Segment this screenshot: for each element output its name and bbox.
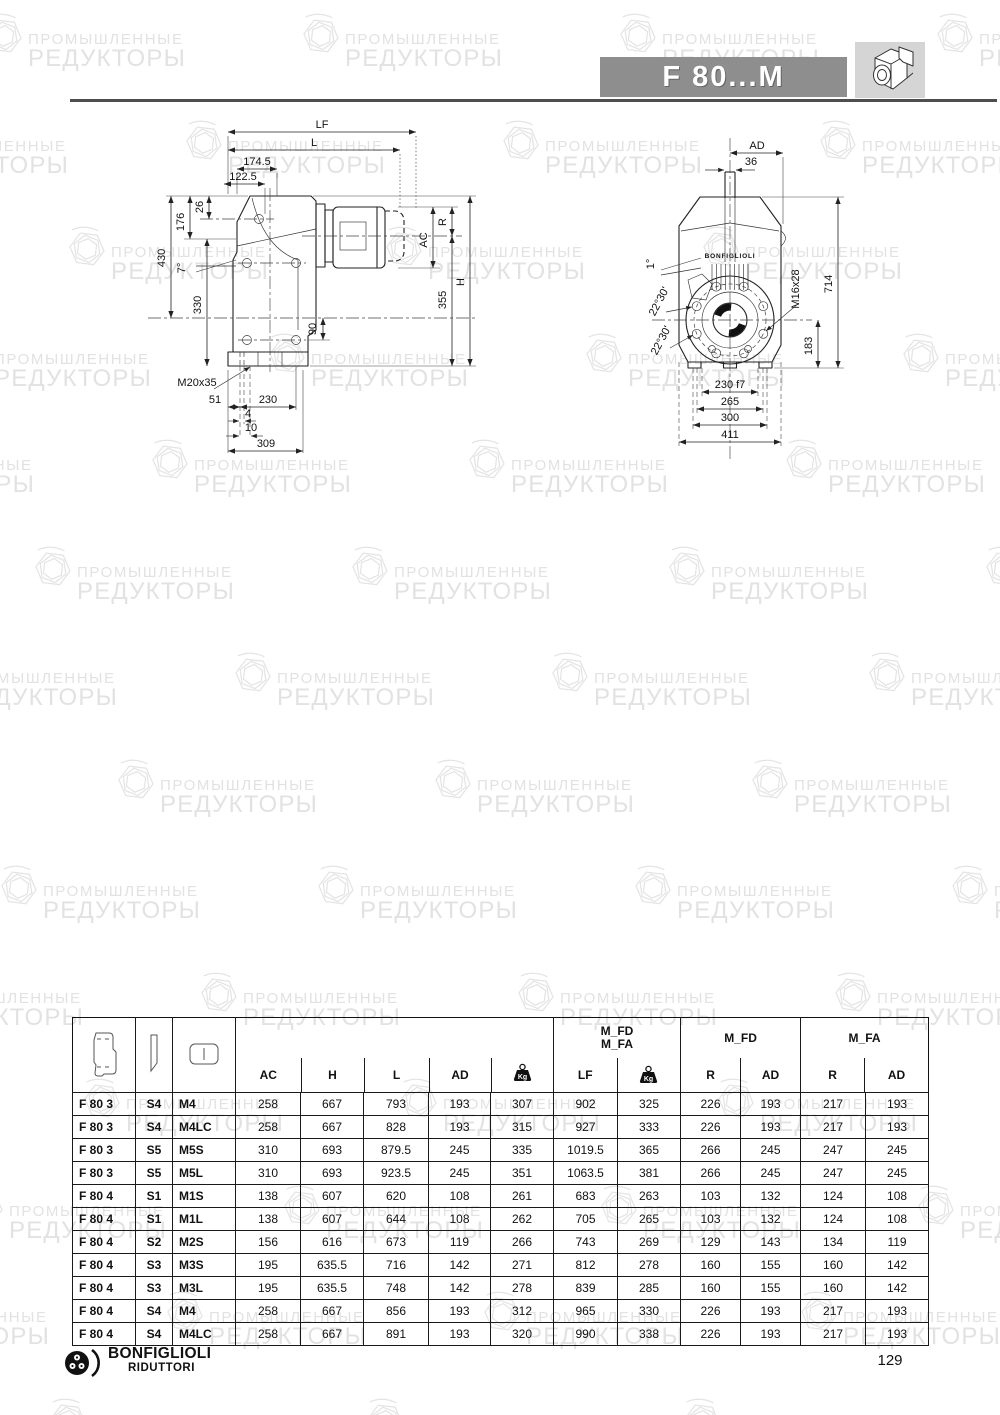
cell-value: S3 [136, 1277, 173, 1300]
watermark: ПРОМЫШЛЕННЫЕРЕДУКТОРЫ [351, 543, 552, 603]
watermark-line1: ПРОМЫШЛЕННЫЕ [994, 884, 1000, 899]
header-divider [70, 99, 997, 102]
cell-value: 124 [801, 1185, 866, 1208]
cell-value: 607 [301, 1185, 364, 1208]
watermark-line2: РЕДУКТОРЫ [160, 793, 318, 816]
cell-value: S5 [136, 1162, 173, 1185]
weight-icon: Kg [618, 1065, 681, 1086]
cell-model: F 80 4 [73, 1231, 136, 1254]
cell-model: F 80 3 [73, 1139, 136, 1162]
cell-value: 129 [681, 1231, 741, 1254]
cell-value: 635.5 [301, 1277, 364, 1300]
watermark-hex-logo [351, 543, 389, 591]
dim-230f7: 230 f7 [715, 379, 746, 391]
watermark-hex-logo [317, 862, 355, 910]
cell-value: 132 [741, 1185, 801, 1208]
dim-714: 714 [823, 275, 835, 293]
cell-value: 247 [801, 1162, 866, 1185]
watermark-line1: ПРОМЫШЛЕННЫЕ [560, 991, 718, 1006]
dim-90: 90 [307, 323, 319, 335]
cell-value: 693 [301, 1162, 364, 1185]
watermark-line2: РЕДУКТОРЫ [794, 793, 952, 816]
cell-value: 879.5 [364, 1139, 429, 1162]
cell-value: 193 [866, 1300, 929, 1323]
cell-value: 635.5 [301, 1254, 364, 1277]
watermark-line2: РЕДУКТОРЫ [0, 686, 118, 709]
watermark-hex-logo [434, 756, 472, 804]
cell-value: 108 [866, 1185, 929, 1208]
cell-value: 193 [741, 1323, 801, 1346]
cell-value: 923.5 [364, 1162, 429, 1185]
watermark-line1: ПРОМЫШЛЕННЫЕ [360, 884, 518, 899]
page-title: F 80...M [600, 57, 847, 97]
cell-value: 160 [681, 1277, 741, 1300]
dim-r: R [437, 218, 449, 226]
bonfiglioli-logo: BONFIGLIOLI RIDUTTORI [62, 1347, 211, 1381]
cell-value: 217 [801, 1093, 866, 1116]
cell-value: 108 [866, 1208, 929, 1231]
cell-value: 828 [364, 1116, 429, 1139]
watermark-line1: ПРОМЫШЛЕННЫЕ [877, 991, 1000, 1006]
cell-value: 143 [741, 1231, 801, 1254]
output-shaft-icon [136, 1018, 173, 1093]
watermark-line1: ПРОМЫШЛЕННЫЕ [77, 565, 235, 580]
watermark-hex-logo [200, 969, 238, 1017]
watermark-line2: РЕДУКТОРЫ [960, 1219, 1000, 1242]
dim-1deg: 1° [645, 259, 657, 270]
watermark-hex-logo [49, 1395, 87, 1415]
watermark-line1: ПРОМЫШЛЕННЫЕ [677, 884, 835, 899]
watermark-line1: ПРОМЫШЛЕННЫЕ [243, 991, 401, 1006]
dim-m20x35: M20x35 [177, 377, 216, 389]
dim-7deg: 7° [176, 263, 188, 274]
watermark-hex-logo [985, 543, 1000, 591]
cell-value: 103 [681, 1208, 741, 1231]
col-header-ad-fd: AD [740, 1058, 800, 1092]
watermark: ПРОМЫШЛЕННЫЕРЕДУКТОРЫ [117, 756, 318, 816]
watermark: ПРОМЫШЛЕННЫЕРЕДУКТОРЫ [868, 649, 1000, 709]
cell-value: 138 [236, 1208, 301, 1231]
cell-value: 644 [364, 1208, 429, 1231]
cell-value: M4 [173, 1093, 236, 1116]
watermark: ПРОМЫШЛЕННЫЕРЕДУКТОРЫ [0, 862, 201, 922]
cell-value: 134 [801, 1231, 866, 1254]
cell-value: 266 [681, 1162, 741, 1185]
cell-value: 193 [429, 1116, 491, 1139]
watermark: ПРОМЫШЛЕННЫЕРЕДУКТОРЫ [634, 862, 835, 922]
cell-value: 217 [801, 1300, 866, 1323]
cell-value: 132 [741, 1208, 801, 1231]
col-header-r-fd: R [681, 1058, 740, 1092]
cell-value: 285 [618, 1277, 681, 1300]
table-header-row: AC H L AD Kg M_FD M_FA LF Kg M_FD R AD [73, 1018, 929, 1093]
watermark-hex-logo [551, 649, 589, 697]
cell-value: 683 [554, 1185, 618, 1208]
dim-h: H [455, 278, 467, 286]
cell-value: 142 [866, 1277, 929, 1300]
dim-22-30-b: 22°30' [649, 324, 674, 357]
dim-411: 411 [721, 429, 739, 441]
cell-value: 333 [618, 1116, 681, 1139]
watermark: ПРОМЫШЛЕННЫЕРЕДУКТОРЫ [751, 756, 952, 816]
cell-value: 263 [618, 1185, 681, 1208]
cell-value: 748 [364, 1277, 429, 1300]
watermark-line1: ПРОМЫШЛЕННЫЕ [711, 565, 869, 580]
watermark-hex-logo [668, 543, 706, 591]
table-row: F 80 4S4M4258667856193312965330226193217… [73, 1300, 929, 1323]
watermark-line1: ПРОМЫШЛЕННЫЕ [0, 991, 84, 1006]
cell-value: 142 [429, 1277, 491, 1300]
cell-value: M1L [173, 1208, 236, 1231]
cell-value: 927 [554, 1116, 618, 1139]
watermark-line1: ПРОМЫШЛЕННЫЕ [43, 884, 201, 899]
cell-value: M5L [173, 1162, 236, 1185]
cell-value: 716 [364, 1254, 429, 1277]
watermark-line2: РЕДУКТОРЫ [394, 580, 552, 603]
cell-value: 812 [554, 1254, 618, 1277]
cell-model: F 80 3 [73, 1116, 136, 1139]
cell-value: 193 [429, 1323, 491, 1346]
cell-value: 1063.5 [554, 1162, 618, 1185]
watermark: ПРОМЫШЛЕННЫЕРЕДУКТОРЫ [0, 756, 1, 816]
cell-value: S4 [136, 1300, 173, 1323]
weight-icon: Kg [513, 1063, 532, 1087]
dim-l: L [311, 137, 317, 149]
cell-value: 245 [429, 1162, 491, 1185]
cell-value: 226 [681, 1093, 741, 1116]
cell-model: F 80 3 [73, 1093, 136, 1116]
cell-value: 245 [741, 1162, 801, 1185]
watermark: ПРОМЫШЛЕННЫЕРЕДУКТОРЫ [551, 649, 752, 709]
cell-value: 965 [554, 1300, 618, 1323]
dim-300: 300 [721, 412, 739, 424]
cell-value: 195 [236, 1254, 301, 1277]
page-title-text: F 80...M [662, 61, 784, 94]
cell-value: 160 [801, 1277, 866, 1300]
watermark: ПРОМЫШЛЕННЫЕРЕДУКТОРЫ [668, 543, 869, 603]
cell-value: 245 [741, 1139, 801, 1162]
cell-value: 266 [681, 1139, 741, 1162]
cell-value: 258 [236, 1323, 301, 1346]
watermark-line2: РЕДУКТОРЫ [0, 793, 1, 816]
table-row: F 80 3S4M4258667793193307902325226193217… [73, 1093, 929, 1116]
watermark-line2: РЕДУКТОРЫ [677, 899, 835, 922]
dim-230: 230 [259, 394, 277, 406]
watermark-hex-logo [0, 1182, 4, 1230]
technical-drawings: LF L 174.5 122.5 26 176 430 330 7° 90 R [0, 0, 1000, 500]
table-row: F 80 4S3M3L195635.5748142278839285160155… [73, 1277, 929, 1300]
watermark: ПРОМЫШЛЕННЫЕРЕДУКТОРЫ [951, 862, 1000, 922]
cell-value: 1019.5 [554, 1139, 618, 1162]
cell-value: M4LC [173, 1323, 236, 1346]
table-row: F 80 4S1M1S13860762010826168326310313212… [73, 1185, 929, 1208]
cell-value: 193 [429, 1093, 491, 1116]
cell-value: S4 [136, 1323, 173, 1346]
cell-value: 193 [741, 1300, 801, 1323]
watermark-hex-logo [683, 1395, 721, 1415]
watermark: ПРОМЫШЛЕННЫЕРЕДУКТОРЫ [34, 543, 235, 603]
watermark-hex-logo [0, 862, 38, 910]
cell-value: S1 [136, 1208, 173, 1231]
watermark: ПРОМЫШЛЕННЫЕРЕДУКТОРЫ [985, 543, 1000, 603]
cell-value: 193 [741, 1116, 801, 1139]
watermark-line1: ПРОМЫШЛЕННЫЕ [0, 671, 118, 686]
watermark-line1: ПРОМЫШЛЕННЫЕ [0, 1310, 50, 1325]
brand-name: BONFIGLIOLI [108, 1347, 211, 1361]
watermark-line2: РЕДУКТОРЫ [360, 899, 518, 922]
cell-value: 338 [618, 1323, 681, 1346]
cell-value: 217 [801, 1323, 866, 1346]
cell-model: F 80 4 [73, 1277, 136, 1300]
watermark-line1: ПРОМЫШЛЕННЫЕ [277, 671, 435, 686]
cell-value: 616 [301, 1231, 364, 1254]
cell-value: 351 [491, 1162, 554, 1185]
cell-value: 381 [618, 1162, 681, 1185]
group-header-mfd-mfa: M_FD M_FA LF Kg [554, 1018, 681, 1093]
cell-value: S5 [136, 1139, 173, 1162]
col-header-r-fa: R [801, 1058, 864, 1092]
cell-value: 142 [429, 1254, 491, 1277]
watermark-hex-logo [517, 969, 555, 1017]
watermark-hex-logo [234, 649, 272, 697]
cell-value: 193 [866, 1116, 929, 1139]
cell-value: M4 [173, 1300, 236, 1323]
cell-value: 607 [301, 1208, 364, 1231]
group-header-mfa: M_FA R AD [801, 1018, 929, 1093]
dim-10: 10 [245, 422, 257, 434]
cell-value: 902 [554, 1093, 618, 1116]
dim-ad: AD [749, 140, 764, 152]
table-row: F 80 4S2M2S15661667311926674326912914313… [73, 1231, 929, 1254]
cell-value: 320 [491, 1323, 554, 1346]
cell-value: 226 [681, 1300, 741, 1323]
cell-value: 245 [866, 1162, 929, 1185]
gearmotor-isometric-icon [855, 42, 925, 98]
cell-value: M3L [173, 1277, 236, 1300]
watermark: ПРОМЫШЛЕННЫЕРЕДУКТОРЫ [317, 862, 518, 922]
cell-value: 193 [866, 1323, 929, 1346]
cell-value: 839 [554, 1277, 618, 1300]
watermark: ПРОМЫШЛЕННЫЕРЕДУКТОРЫ [683, 1395, 884, 1415]
watermark: ПРОМЫШЛЕННЫЕРЕДУКТОРЫ [0, 1288, 50, 1348]
dimension-table: AC H L AD Kg M_FD M_FA LF Kg M_FD R AD [72, 1017, 929, 1346]
gearbox-side-icon [73, 1018, 136, 1093]
watermark-line1: ПРОМЫШЛЕННЫЕ [477, 778, 635, 793]
watermark-line2: РЕДУКТОРЫ [43, 899, 201, 922]
cell-value: 108 [429, 1208, 491, 1231]
cell-value: 103 [681, 1185, 741, 1208]
cell-model: F 80 4 [73, 1185, 136, 1208]
dim-355: 355 [437, 291, 449, 309]
cell-value: 310 [236, 1139, 301, 1162]
dim-36: 36 [745, 156, 757, 168]
cell-value: 160 [681, 1254, 741, 1277]
cell-value: 262 [491, 1208, 554, 1231]
cell-value: 245 [866, 1139, 929, 1162]
dim-265: 265 [721, 396, 739, 408]
watermark-line1: ПРОМЫШЛЕННЫЕ [160, 778, 318, 793]
col-header-ad-fa: AD [864, 1058, 928, 1092]
watermark-line2: РЕДУКТОРЫ [477, 793, 635, 816]
cell-value: 160 [801, 1254, 866, 1277]
dim-ac: AC [418, 232, 430, 247]
svg-text:Kg: Kg [518, 1074, 527, 1081]
watermark: ПРОМЫШЛЕННЫЕРЕДУКТОРЫ [917, 1182, 1000, 1242]
cell-model: F 80 4 [73, 1300, 136, 1323]
dim-122: 122.5 [229, 171, 257, 183]
dim-309: 309 [257, 438, 275, 450]
cell-value: 667 [301, 1093, 364, 1116]
cell-value: 226 [681, 1323, 741, 1346]
cell-value: 673 [364, 1231, 429, 1254]
watermark-line2: РЕДУКТОРЫ [994, 899, 1000, 922]
watermark-line2: РЕДУКТОРЫ [711, 580, 869, 603]
watermark-hex-logo [751, 756, 789, 804]
watermark: ПРОМЫШЛЕННЫЕРЕДУКТОРЫ [0, 649, 118, 709]
dim-176: 176 [175, 213, 187, 231]
watermark-hex-logo [117, 756, 155, 804]
cell-value: S3 [136, 1254, 173, 1277]
cell-value: M1S [173, 1185, 236, 1208]
cell-value: M3S [173, 1254, 236, 1277]
dim-lf: LF [316, 119, 329, 131]
cell-value: M2S [173, 1231, 236, 1254]
page-number: 129 [868, 1352, 912, 1369]
cell-value: 119 [866, 1231, 929, 1254]
cell-value: 793 [364, 1093, 429, 1116]
table-row: F 80 4S3M3S195635.5716142271812278160155… [73, 1254, 929, 1277]
cell-model: F 80 4 [73, 1254, 136, 1277]
cell-value: 142 [866, 1254, 929, 1277]
watermark-hex-logo [834, 969, 872, 1017]
cell-value: S2 [136, 1231, 173, 1254]
cell-value: 261 [491, 1185, 554, 1208]
col-header-l: L [364, 1058, 429, 1092]
watermark-hex-logo [34, 543, 72, 591]
cell-value: 365 [618, 1139, 681, 1162]
flange-icon [173, 1018, 236, 1093]
watermark-line2: РЕДУКТОРЫ [77, 580, 235, 603]
cell-value: 667 [301, 1300, 364, 1323]
cell-value: 278 [618, 1254, 681, 1277]
cell-value: 138 [236, 1185, 301, 1208]
cell-value: 743 [554, 1231, 618, 1254]
watermark: ПРОМЫШЛЕННЫЕРЕДУКТОРЫ [234, 649, 435, 709]
dim-4: 4 [245, 408, 251, 420]
cell-value: 247 [801, 1139, 866, 1162]
cell-value: 119 [429, 1231, 491, 1254]
group-label-mfa: M_FA [601, 1038, 633, 1051]
col-header-lf: LF [554, 1058, 617, 1092]
cell-value: S4 [136, 1116, 173, 1139]
cell-model: F 80 4 [73, 1323, 136, 1346]
dim-m16x28: M16x28 [790, 269, 802, 308]
table-body: F 80 3S4M4258667793193307902325226193217… [73, 1093, 929, 1346]
catalog-page: { "watermark": { "line1": "ПРОМЫШЛЕННЫЕ"… [0, 0, 1000, 1415]
cell-value: 265 [618, 1208, 681, 1231]
cell-value: 271 [491, 1254, 554, 1277]
table-row: F 80 3S5M5L310693923.52453511063.5381266… [73, 1162, 929, 1185]
cell-value: 258 [236, 1093, 301, 1116]
dim-183: 183 [803, 337, 815, 355]
watermark: ПРОМЫШЛЕННЫЕРЕДУКТОРЫ [366, 1395, 567, 1415]
dim-22-30-a: 22°30' [647, 285, 672, 318]
cell-value: 705 [554, 1208, 618, 1231]
cell-value: 258 [236, 1116, 301, 1139]
dim-330: 330 [192, 296, 204, 314]
cell-value: 620 [364, 1185, 429, 1208]
cell-value: 124 [801, 1208, 866, 1231]
cell-model: F 80 4 [73, 1208, 136, 1231]
cell-value: 245 [429, 1139, 491, 1162]
cell-value: S4 [136, 1093, 173, 1116]
watermark-hex-logo [634, 862, 672, 910]
cell-value: 312 [491, 1300, 554, 1323]
col-header-ac: AC [236, 1058, 301, 1092]
watermark-hex-logo [366, 1395, 404, 1415]
watermark-line2: РЕДУКТОРЫ [0, 1325, 50, 1348]
cell-value: 310 [236, 1162, 301, 1185]
watermark-line1: ПРОМЫШЛЕННЫЕ [394, 565, 552, 580]
cell-value: 856 [364, 1300, 429, 1323]
cell-value: 156 [236, 1231, 301, 1254]
dim-26: 26 [194, 201, 206, 213]
cell-value: 155 [741, 1277, 801, 1300]
watermark: ПРОМЫШЛЕННЫЕРЕДУКТОРЫ [49, 1395, 250, 1415]
cell-value: 667 [301, 1323, 364, 1346]
cell-value: 307 [491, 1093, 554, 1116]
cell-value: S1 [136, 1185, 173, 1208]
cell-value: 266 [491, 1231, 554, 1254]
cell-value: 193 [866, 1093, 929, 1116]
drawing-side-view: LF L 174.5 122.5 26 176 430 330 7° 90 R [148, 119, 478, 453]
dim-430: 430 [156, 249, 168, 267]
cell-value: 335 [491, 1139, 554, 1162]
cell-value: 315 [491, 1116, 554, 1139]
cell-value: M5S [173, 1139, 236, 1162]
watermark-line2: РЕДУКТОРЫ [594, 686, 752, 709]
watermark-line2: РЕДУКТОРЫ [911, 686, 1000, 709]
dim-174: 174.5 [243, 156, 271, 168]
cell-value: 330 [618, 1300, 681, 1323]
cell-value: 667 [301, 1116, 364, 1139]
cell-value: 108 [429, 1185, 491, 1208]
cell-value: 217 [801, 1116, 866, 1139]
watermark-line1: ПРОМЫШЛЕННЫЕ [960, 1204, 1000, 1219]
watermark-hex-logo [951, 862, 989, 910]
col-header-h: H [301, 1058, 364, 1092]
table-row: F 80 4S4M4LC2586678911933209903382261932… [73, 1323, 929, 1346]
col-header-ad: AD [429, 1058, 491, 1092]
cell-value: 155 [741, 1254, 801, 1277]
cell-value: 269 [618, 1231, 681, 1254]
cell-value: M4LC [173, 1116, 236, 1139]
watermark-line1: ПРОМЫШЛЕННЫЕ [911, 671, 1000, 686]
drawing-front-view: BONFIGLIOLI AD 36 1° 22°30' [645, 138, 844, 462]
watermark-line1: ПРОМЫШЛЕННЫЕ [794, 778, 952, 793]
cell-value: 195 [236, 1277, 301, 1300]
cell-value: 193 [741, 1093, 801, 1116]
watermark-line1: ПРОМЫШЛЕННЫЕ [0, 778, 1, 793]
cell-value: 278 [491, 1277, 554, 1300]
table-row: F 80 3S4M4LC2586678281933159273332261932… [73, 1116, 929, 1139]
watermark-line2: РЕДУКТОРЫ [277, 686, 435, 709]
dim-51: 51 [209, 394, 221, 406]
bonfiglioli-gear-icon [62, 1347, 104, 1381]
cell-value: 693 [301, 1139, 364, 1162]
watermark-hex-logo [868, 649, 906, 697]
svg-text:Kg: Kg [644, 1076, 653, 1083]
